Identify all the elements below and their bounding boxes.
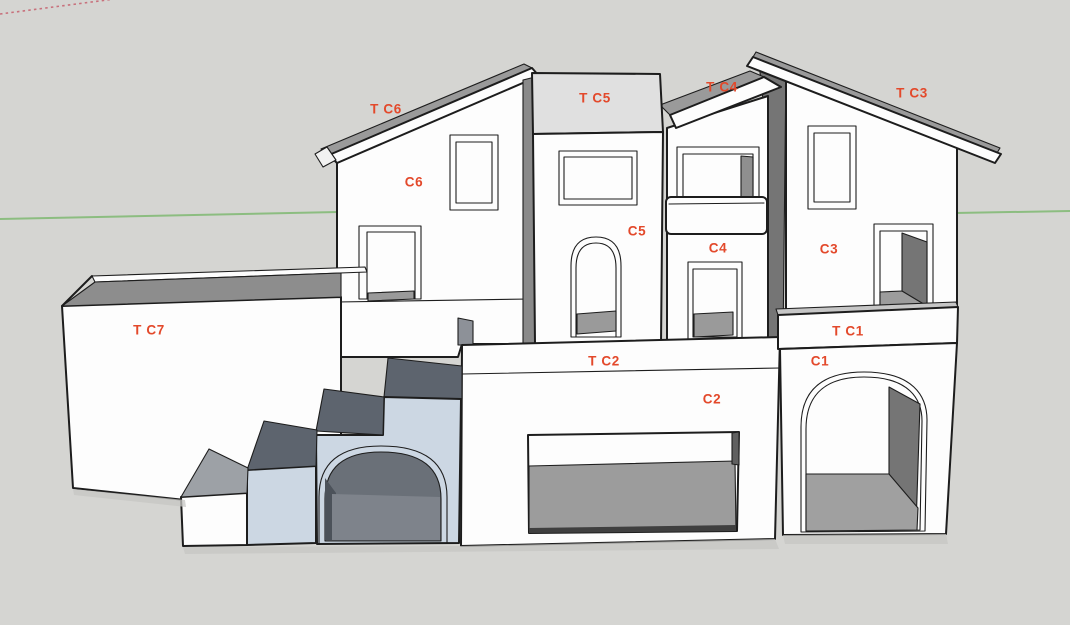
viewport-canvas[interactable] [0, 0, 1070, 625]
c6-building[interactable] [315, 64, 539, 357]
c1-parapet-front[interactable] [778, 307, 958, 349]
c4-lower-window-sill[interactable] [694, 312, 733, 337]
c5-tower[interactable] [532, 73, 663, 345]
stair-arch-interior-floor [332, 494, 440, 540]
c5-window[interactable] [564, 157, 632, 199]
c2-parapet-side-face[interactable] [458, 318, 473, 345]
stair-tread-4[interactable] [384, 358, 462, 399]
c4-balcony-slab[interactable] [666, 197, 767, 234]
stair-step1-face[interactable] [181, 493, 247, 546]
c1-facade[interactable] [776, 302, 958, 535]
green-axis-line-right [955, 211, 1070, 213]
stair-tread-3[interactable] [316, 389, 384, 435]
c2-garage-floor[interactable] [529, 461, 736, 532]
c4-upper-window-jamb[interactable] [741, 156, 753, 203]
c5-niche-sill[interactable] [577, 311, 616, 334]
ground-shadow-right [783, 534, 948, 544]
green-axis-line-left [0, 212, 338, 219]
c6-lower-window-sill[interactable] [368, 291, 414, 301]
c6-upper-window[interactable] [456, 142, 492, 203]
c5-tower-top-face[interactable] [532, 73, 663, 134]
c2-garage-jamb[interactable] [732, 432, 739, 465]
viewport[interactable]: T C6C6T C5C5T C4C4T C3C3T C7T C2C2T C1C1 [0, 0, 1070, 625]
c2-facade[interactable] [461, 337, 780, 546]
c3-window[interactable] [814, 133, 850, 202]
c3-building[interactable] [747, 52, 1001, 344]
c6-lower-window[interactable] [367, 232, 415, 299]
stair-step2-face[interactable] [247, 466, 316, 545]
red-axis-dashed-line [0, 0, 122, 14]
c4-section[interactable] [660, 71, 781, 342]
